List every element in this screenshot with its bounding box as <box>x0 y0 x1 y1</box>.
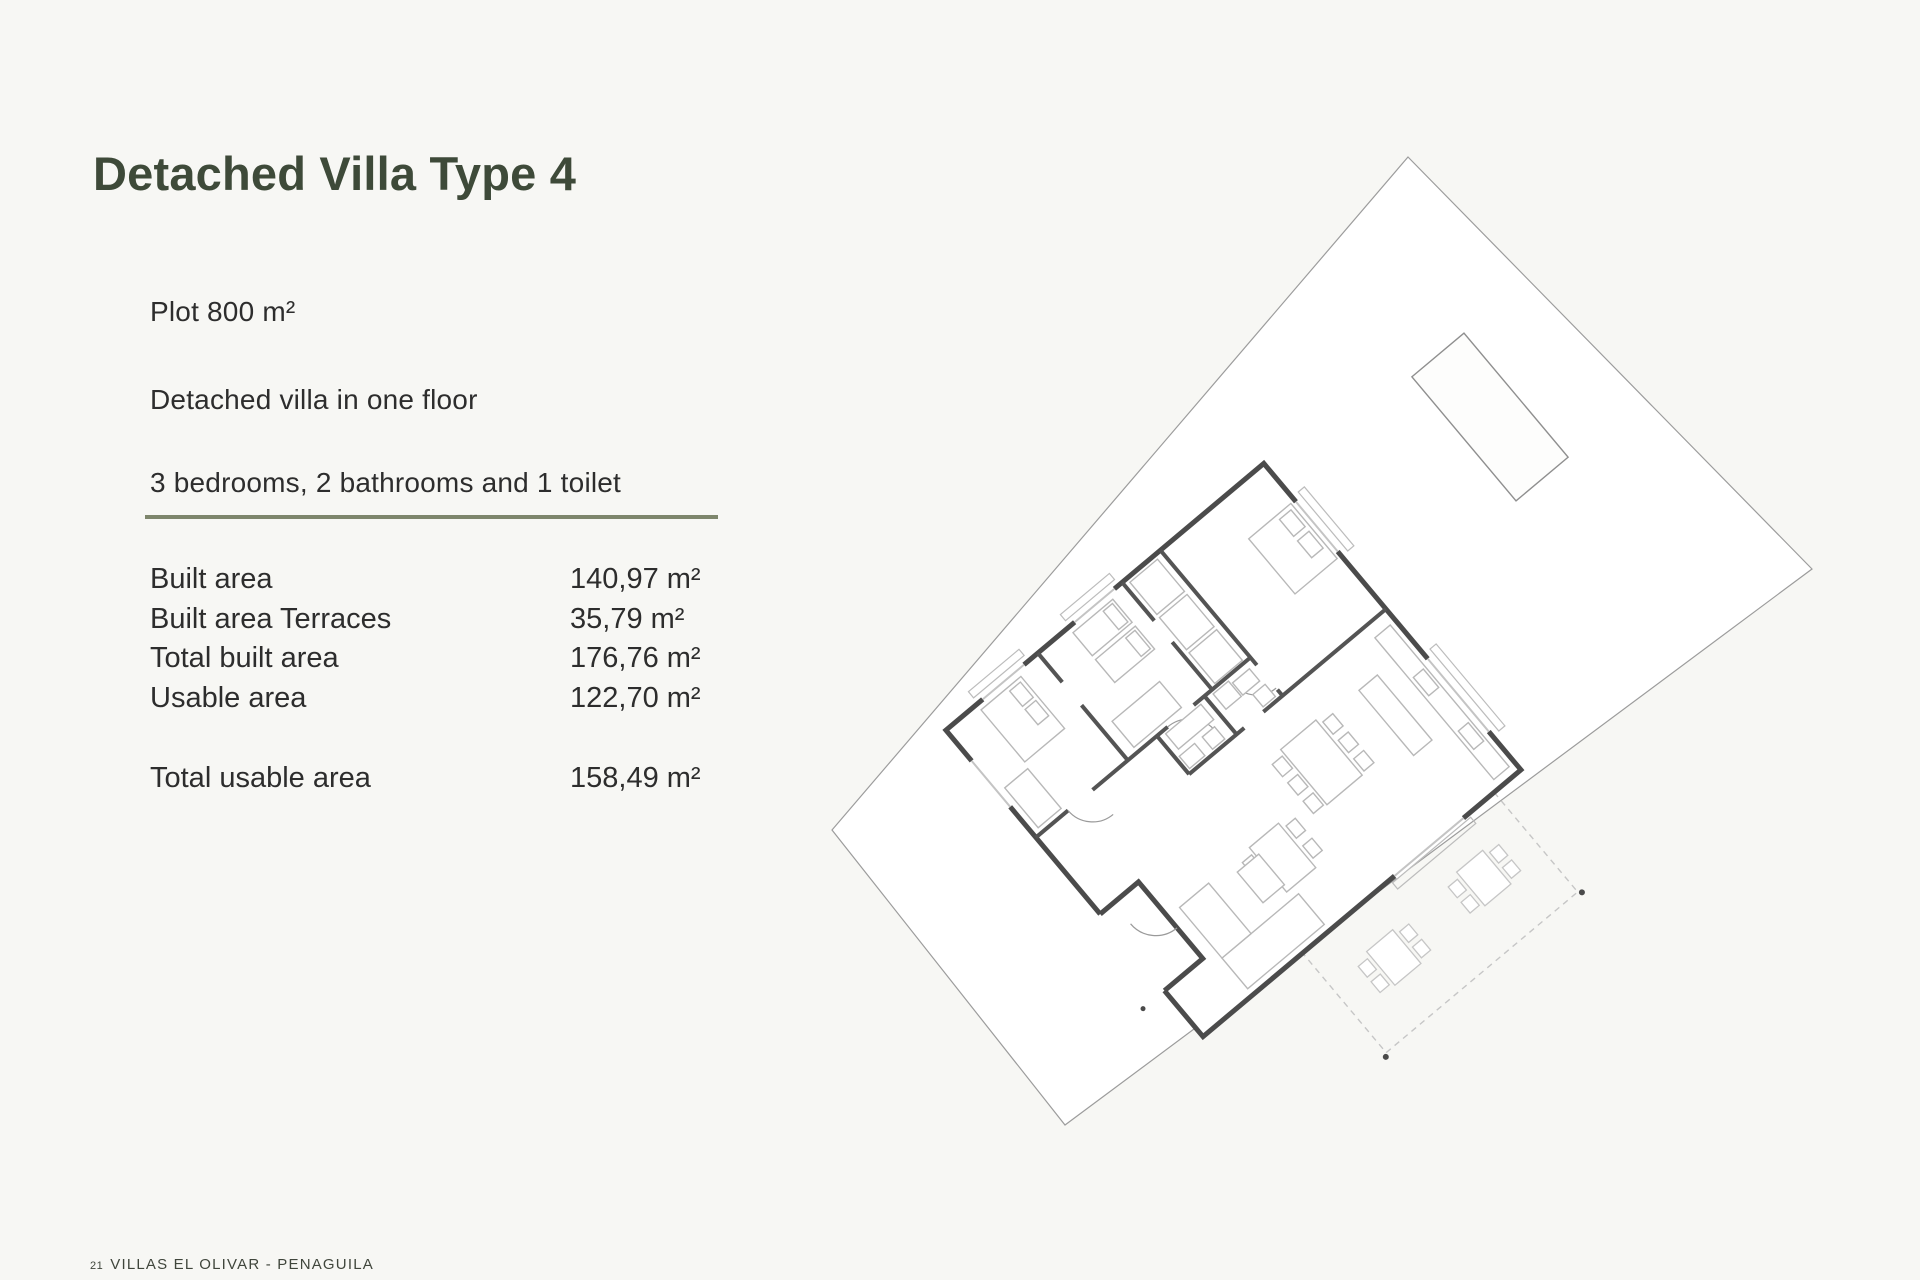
spec-floors: Detached villa in one floor <box>150 384 478 416</box>
terrace-furniture <box>1352 840 1525 996</box>
spec-rooms: 3 bedrooms, 2 bathrooms and 1 toilet <box>150 467 621 499</box>
entrance-porch <box>1097 882 1203 994</box>
area-row: Built area Terraces 35,79 m² <box>150 600 730 640</box>
area-label: Built area <box>150 560 570 600</box>
area-value: 122,70 m² <box>570 679 730 719</box>
area-row: Usable area 122,70 m² <box>150 679 730 719</box>
terrace-corner-dot <box>1578 888 1586 896</box>
furniture <box>955 470 1512 1025</box>
area-value: 176,76 m² <box>570 639 730 679</box>
page-number: 21 <box>90 1260 103 1272</box>
area-table: Built area 140,97 m² Built area Terraces… <box>150 560 730 799</box>
area-row-total: Total usable area 158,49 m² <box>150 759 730 799</box>
windows <box>933 442 1541 1049</box>
door-arcs <box>1068 657 1276 841</box>
villa-floor-plan <box>913 442 1621 1161</box>
page-footer: 21VILLAS EL OLIVAR - PENAGUILA <box>90 1256 374 1273</box>
terrace-outline <box>1303 792 1578 1052</box>
area-value: 158,49 m² <box>570 759 730 799</box>
area-label: Usable area <box>150 679 570 719</box>
area-row: Built area 140,97 m² <box>150 560 730 600</box>
area-label: Total built area <box>150 639 570 679</box>
outer-walls <box>946 463 1521 1036</box>
area-rows: Built area 140,97 m² Built area Terraces… <box>150 560 730 718</box>
terrace-corner-dot <box>1382 1053 1390 1061</box>
plot-boundary <box>832 157 1812 1125</box>
pool <box>1412 333 1568 501</box>
area-label: Built area Terraces <box>150 600 570 640</box>
divider-line <box>145 515 718 519</box>
area-label: Total usable area <box>150 759 570 799</box>
porch-corner-dot <box>1139 1005 1146 1012</box>
area-value: 140,97 m² <box>570 560 730 600</box>
spec-plot-size: Plot 800 m² <box>150 296 295 328</box>
area-value: 35,79 m² <box>570 600 730 640</box>
interior-walls <box>946 463 1386 875</box>
brochure-page: Detached Villa Type 4 Plot 800 m² Detach… <box>0 0 1920 1280</box>
project-name: VILLAS EL OLIVAR - PENAGUILA <box>110 1256 374 1273</box>
area-row: Total built area 176,76 m² <box>150 639 730 679</box>
page-title: Detached Villa Type 4 <box>93 146 576 201</box>
